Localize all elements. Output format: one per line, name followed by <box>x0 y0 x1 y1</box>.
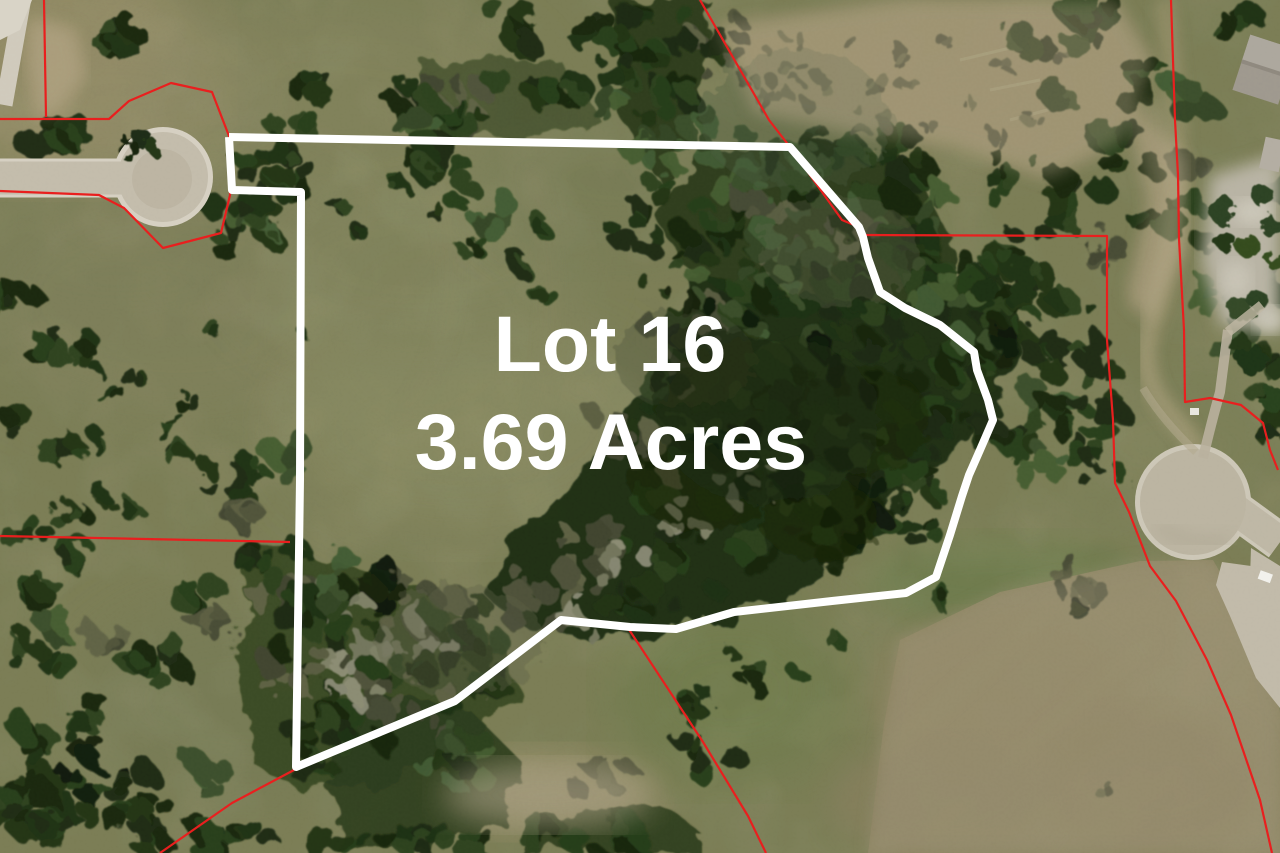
svg-text:3.69 Acres: 3.69 Acres <box>415 397 807 486</box>
svg-text:Lot 16: Lot 16 <box>494 299 727 388</box>
